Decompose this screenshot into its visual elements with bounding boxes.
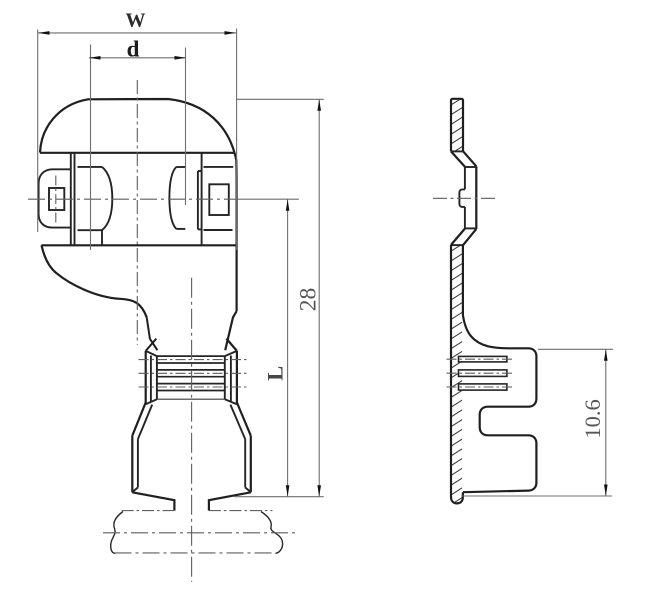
svg-text:d: d xyxy=(127,37,140,62)
svg-text:28: 28 xyxy=(295,288,321,312)
svg-text:W: W xyxy=(126,10,146,32)
svg-text:10.6: 10.6 xyxy=(580,399,605,438)
svg-text:L: L xyxy=(262,366,287,381)
